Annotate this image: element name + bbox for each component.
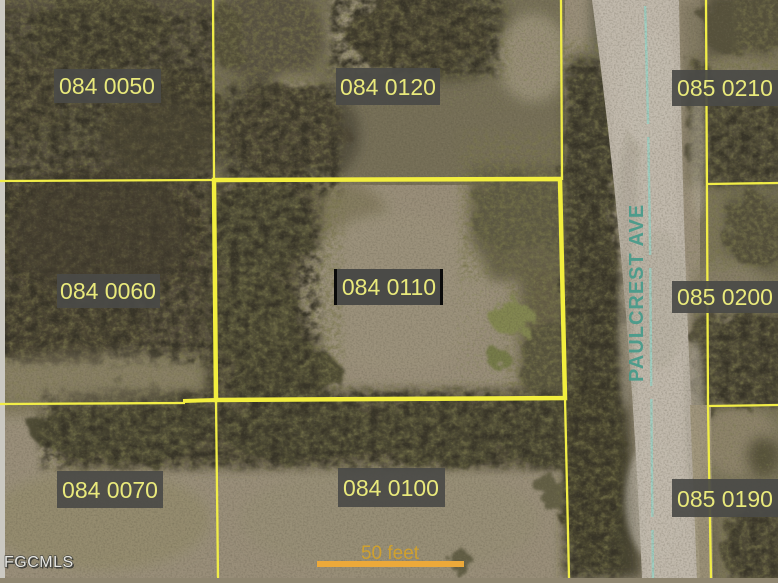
svg-text:085 0210: 085 0210	[677, 75, 773, 101]
svg-text:084 0120: 084 0120	[340, 74, 436, 100]
svg-text:084 0110: 084 0110	[342, 274, 436, 300]
svg-text:084 0060: 084 0060	[60, 278, 156, 304]
svg-text:PAULCREST AVE: PAULCREST AVE	[626, 204, 648, 382]
svg-text:FGCMLS: FGCMLS	[4, 554, 74, 571]
svg-text:085 0200: 085 0200	[677, 284, 773, 310]
svg-text:084 0100: 084 0100	[343, 475, 439, 501]
svg-text:50 feet: 50 feet	[361, 543, 420, 564]
svg-text:085 0190: 085 0190	[677, 486, 773, 512]
svg-text:084 0070: 084 0070	[62, 477, 158, 503]
svg-text:084 0050: 084 0050	[59, 73, 155, 99]
